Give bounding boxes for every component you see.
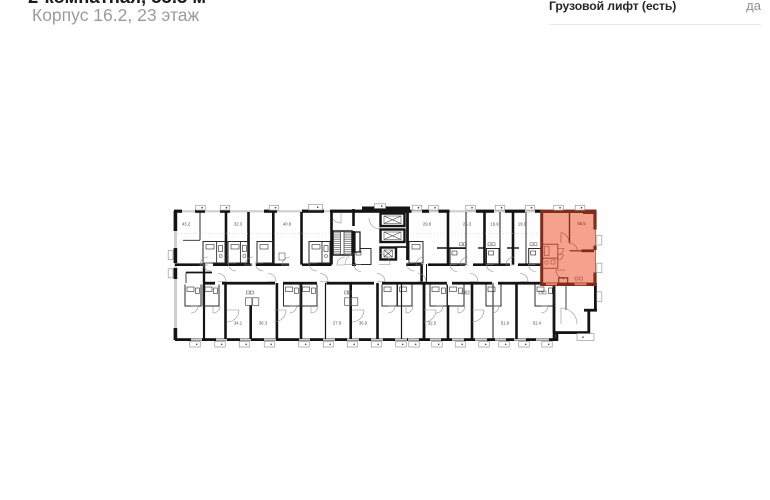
svg-text:32.3: 32.3	[234, 222, 243, 227]
svg-text:40.8: 40.8	[283, 222, 292, 227]
svg-text:51.8: 51.8	[501, 321, 510, 326]
svg-text:36.3: 36.3	[259, 321, 268, 326]
svg-text:36.9: 36.9	[359, 321, 368, 326]
svg-text:19.9: 19.9	[490, 222, 499, 227]
svg-text:29.8: 29.8	[423, 222, 432, 227]
svg-text:32.5: 32.5	[428, 321, 437, 326]
svg-text:43.2: 43.2	[182, 222, 191, 227]
svg-text:55.5: 55.5	[577, 221, 586, 226]
svg-text:34.1: 34.1	[234, 321, 243, 326]
svg-text:25.3: 25.3	[463, 222, 472, 227]
svg-text:27.8: 27.8	[333, 321, 342, 326]
svg-text:19.9: 19.9	[518, 222, 527, 227]
svg-text:52.4: 52.4	[533, 321, 542, 326]
